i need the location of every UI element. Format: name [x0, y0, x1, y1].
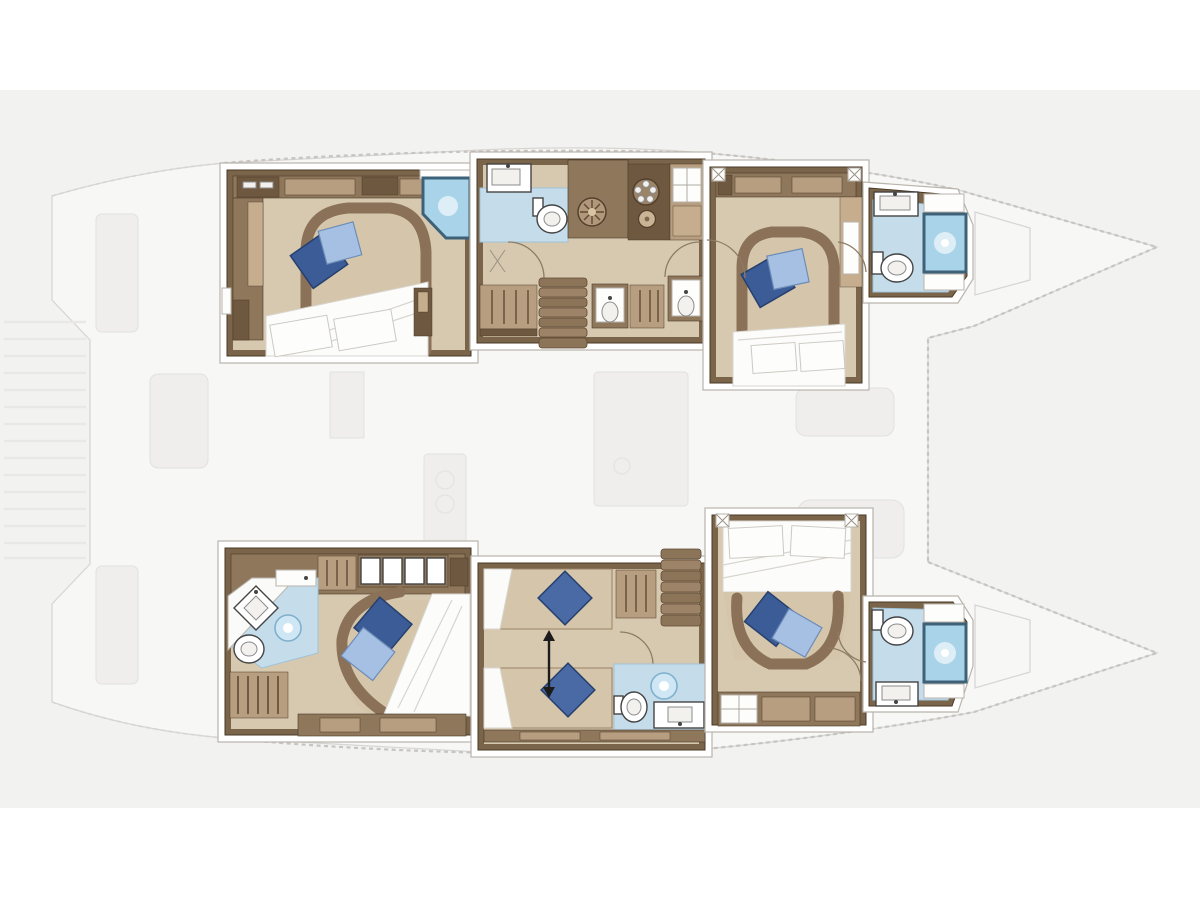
cabinet-icon [330, 372, 364, 438]
sink-circle-icon [436, 471, 454, 489]
deck-hatch-icon [362, 177, 398, 195]
bed-pillow-white [799, 340, 845, 371]
nightstand-icon [233, 300, 249, 340]
bed-pillow-white [751, 342, 797, 373]
floor-plan-page [0, 0, 1200, 900]
transom-steps [4, 322, 86, 558]
bed-pillow-white [728, 526, 783, 559]
bathroom-mid-starboard [614, 664, 706, 730]
louver-locker-icon [230, 672, 288, 718]
sink-circle-icon [436, 495, 454, 513]
bench-icon [96, 214, 138, 332]
vanity-icon [668, 276, 704, 321]
cabin-forward-port [703, 160, 869, 390]
single-bed-icon [484, 569, 612, 629]
bench-icon [96, 566, 138, 684]
locker-row [718, 692, 860, 726]
floor-plan-svg [0, 0, 1200, 900]
table-icon [614, 458, 630, 474]
stove-icon [633, 179, 659, 205]
pillow-icon [767, 249, 809, 290]
wardrobe-icon [630, 285, 664, 328]
vanity-icon [592, 284, 628, 328]
bed-pillow-white [790, 526, 845, 559]
sofa-icon [796, 388, 894, 436]
wardrobe-doors-icon [358, 555, 448, 587]
table-icon [150, 374, 208, 468]
cabin-aft-port [220, 163, 478, 363]
cabin-aft-starboard [218, 541, 478, 742]
corridor-galley-port [470, 152, 712, 350]
round-sink-icon [639, 211, 656, 228]
cabin-forward-starboard [705, 508, 873, 732]
washer-icon [578, 198, 606, 226]
island-icon [594, 372, 688, 506]
